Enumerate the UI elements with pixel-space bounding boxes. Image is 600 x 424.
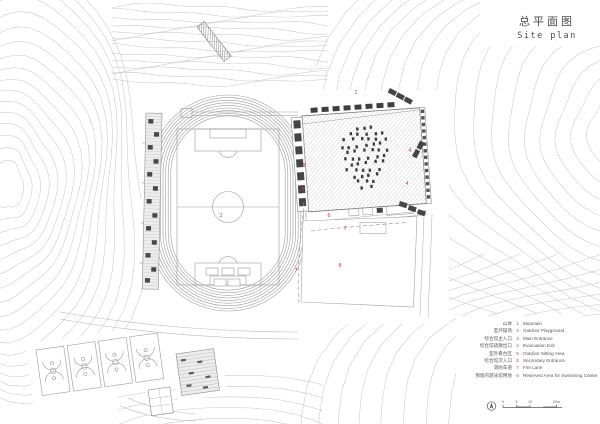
north-and-scale: 0 5 10 20m bbox=[487, 400, 562, 410]
callout-4-evacuation-a: 4 bbox=[408, 148, 411, 154]
legend-zh: 综合馆主入口 bbox=[452, 336, 512, 342]
legend-en: Outdoor Sitting Area bbox=[523, 351, 598, 356]
legend-num: 2 bbox=[512, 328, 523, 333]
south-bleachers bbox=[176, 349, 219, 396]
callout-7-fire-lane-b: 7 bbox=[294, 268, 297, 274]
callout-5-sitting-area: 5 bbox=[301, 187, 304, 193]
site-plan-page: 1 2 3 5 4 4 6 7 7 8 0 5 10 20m bbox=[0, 0, 600, 424]
legend-num: 6 bbox=[512, 358, 523, 363]
legend-row: 综合馆主入口3Main Entrance bbox=[452, 336, 598, 342]
legend-en: Reserved Area for Swimming Center bbox=[523, 373, 598, 378]
scale-segment-a bbox=[517, 407, 531, 408]
legend-zh: 室外操场 bbox=[452, 328, 512, 334]
north-arrow-icon bbox=[490, 402, 494, 409]
legend-num: 5 bbox=[512, 351, 523, 356]
callout-8-reserved-area: 8 bbox=[338, 263, 341, 269]
legend-en: Evacuation Exit bbox=[523, 343, 598, 348]
legend-en: Secondary Entrance bbox=[523, 358, 598, 363]
legend-en: Mountain bbox=[523, 321, 598, 326]
legend-num: 4 bbox=[512, 343, 523, 348]
callout-4-evacuation-b: 4 bbox=[405, 181, 408, 187]
callout-1-mountain: 1 bbox=[354, 90, 357, 96]
legend-row: 综合馆次入口6Secondary Entrance bbox=[452, 358, 598, 364]
legend-num: 1 bbox=[512, 321, 523, 326]
small-building bbox=[148, 387, 173, 416]
title-chinese: 总平面图 bbox=[510, 13, 584, 29]
legend-row: 山体1Mountain bbox=[452, 321, 598, 327]
legend-en: Outdoor Playground bbox=[523, 328, 598, 333]
legend-row: 室外看台区5Outdoor Sitting Area bbox=[452, 351, 598, 357]
scale-label-20: 20m bbox=[553, 400, 560, 404]
callout-2-playground: 2 bbox=[219, 213, 222, 219]
legend-zh: 山体 bbox=[452, 321, 512, 327]
scale-label-10: 10 bbox=[528, 400, 532, 404]
legend-en: Fire Lane bbox=[523, 365, 598, 370]
legend-zh: 消防车道 bbox=[452, 365, 512, 371]
scale-label-0: 0 bbox=[502, 400, 504, 404]
title-english: Site plan bbox=[510, 31, 584, 41]
legend-num: 3 bbox=[512, 336, 523, 341]
callout-6-secondary: 6 bbox=[327, 213, 330, 219]
legend-zh: 综合馆次入口 bbox=[452, 358, 512, 364]
legend: 山体1Mountain 室外操场2Outdoor Playground 综合馆主… bbox=[452, 321, 598, 380]
legend-row: 消防车道7Fire Lane bbox=[452, 365, 598, 371]
scale-labels: 0 5 10 20m bbox=[502, 400, 560, 404]
legend-row: 综合馆疏散出口4Evacuation Exit bbox=[452, 343, 598, 349]
legend-num: 7 bbox=[512, 365, 523, 370]
legend-en: Main Entrance bbox=[523, 336, 598, 341]
drawing-title: 总平面图 Site plan bbox=[510, 13, 584, 41]
legend-num: 8 bbox=[512, 373, 523, 378]
legend-zh: 预留的游泳馆用地 bbox=[452, 373, 512, 379]
callout-3-main-entrance: 3 bbox=[302, 163, 305, 169]
legend-row: 室外操场2Outdoor Playground bbox=[452, 328, 598, 334]
legend-row: 预留的游泳馆用地8Reserved Area for Swimming Cent… bbox=[452, 373, 598, 379]
scale-label-5: 5 bbox=[516, 400, 518, 404]
legend-zh: 综合馆疏散出口 bbox=[452, 343, 512, 349]
legend-zh: 室外看台区 bbox=[452, 351, 512, 357]
scale-segment-b bbox=[543, 407, 556, 408]
callout-7-fire-lane-a: 7 bbox=[343, 226, 346, 232]
